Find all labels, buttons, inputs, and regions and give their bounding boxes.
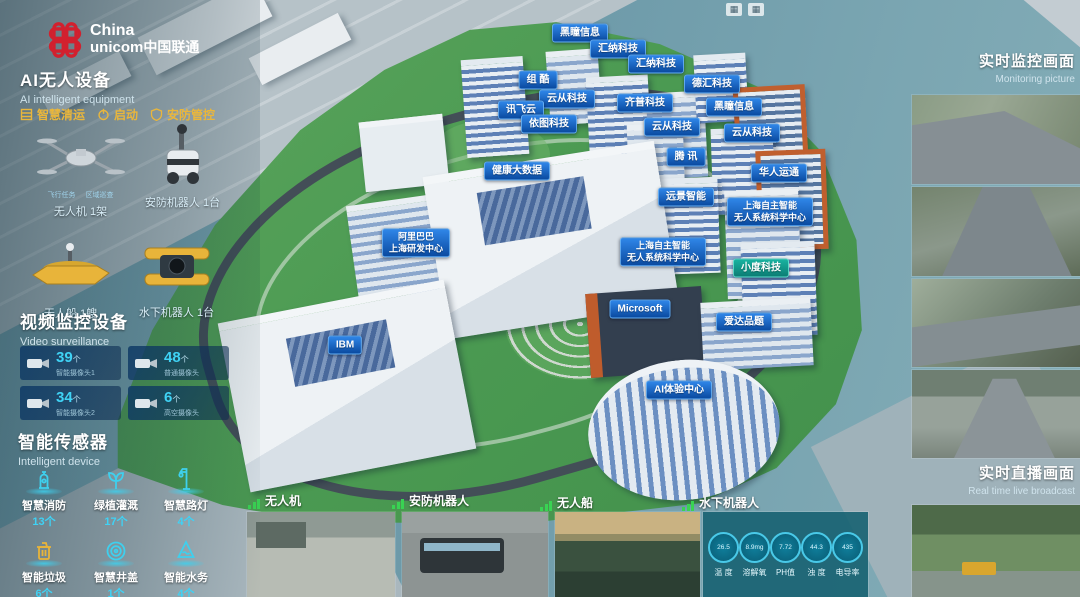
ai-equipment-subtitle: AI intelligent equipment	[20, 94, 134, 106]
monitor-camera-thumbnail-2[interactable]	[912, 187, 1080, 276]
gauge-temperature: 26.5 温 度	[708, 532, 739, 578]
device-drone[interactable]: 飞行任务 区域巡查 无人机 1架	[28, 128, 133, 219]
camera-stat-card[interactable]: 48个 普通摄像头	[128, 346, 229, 380]
drone-patrol-badge: 区域巡查	[86, 190, 114, 200]
camera-icon	[134, 395, 158, 411]
logo-text-cn: 中国联通	[143, 39, 199, 55]
security-robot-video-thumbnail[interactable]	[402, 512, 548, 597]
sensor-base-glow	[168, 488, 204, 495]
water-quality-panel: 26.5 温 度 8.9mg 溶解氧 7.72 PH值 44.3 浊 度 435…	[703, 512, 868, 597]
building-label[interactable]: 云从科技	[539, 90, 595, 109]
camera-icon	[134, 355, 158, 371]
unmanned-boat-image	[25, 235, 117, 297]
drone-video-thumbnail[interactable]	[247, 512, 395, 597]
sensor-base-glow	[98, 488, 134, 495]
sensor-base-glow	[168, 560, 204, 567]
monitor-camera-thumbnail-1[interactable]	[912, 95, 1080, 184]
map-layers-control[interactable]: ▦	[748, 3, 764, 16]
building-label[interactable]: 健康大数据	[484, 162, 550, 181]
smart-park-dashboard: 黑瞳信息 汇纳科技 汇纳科技 组 酷 德汇科技 云从科技 齐普科技 黑瞳信息 讯…	[0, 0, 1080, 597]
building-label[interactable]: 华人运通	[751, 164, 807, 183]
sensor-base-glow	[26, 488, 62, 495]
logo-text-en1: China	[90, 23, 199, 40]
building-label[interactable]: 黑瞳信息	[706, 98, 762, 117]
video-title: 视频监控设备	[20, 308, 128, 333]
building-label[interactable]: 上海自主智能 无人系统科学中心	[727, 197, 813, 226]
building-label[interactable]: 汇纳科技	[628, 55, 684, 74]
drone-image	[35, 128, 127, 184]
broadcast-subtitle: Real time live broadcast	[915, 486, 1075, 497]
building-label[interactable]: 依图科技	[521, 115, 577, 134]
building-label[interactable]: 上海自主智能 无人系统科学中心	[620, 237, 706, 266]
gauge-dissolved-oxygen: 8.9mg 溶解氧	[739, 532, 770, 578]
gauge-turbidity: 44.3 浊 度	[801, 532, 832, 578]
logo-text-en2: unicom	[90, 39, 143, 56]
monitor-camera-thumbnail-4[interactable]	[912, 370, 1080, 458]
monitoring-panel-header: 实时监控画面 Monitoring picture	[915, 50, 1075, 85]
sensor-trash[interactable]: 智能垃圾 6个	[10, 538, 78, 597]
building-label[interactable]: 德汇科技	[684, 75, 740, 94]
building-label[interactable]: 组 酷	[519, 71, 558, 90]
building-label[interactable]: 齐普科技	[617, 94, 673, 113]
sensors-title: 智能传感器	[18, 428, 108, 453]
building-label[interactable]: 云从科技	[644, 118, 700, 137]
underwater-robot-image	[131, 238, 223, 296]
left-sidebar: China unicom中国联通 AI无人设备 AI intelligent e…	[0, 0, 260, 597]
building-label[interactable]: 云从科技	[724, 124, 780, 143]
building-label[interactable]: 远景智能	[658, 188, 714, 207]
monitor-camera-thumbnail-3[interactable]	[912, 279, 1080, 367]
broadcast-title: 实时直播画面	[915, 462, 1075, 483]
shield-icon	[150, 108, 163, 121]
broadcast-thumbnail[interactable]	[912, 505, 1080, 597]
camera-stat-card[interactable]: 39个 智能摄像头1	[20, 346, 121, 380]
monitoring-subtitle: Monitoring picture	[915, 74, 1075, 85]
action-security-control[interactable]: 安防管控	[150, 106, 215, 123]
action-start[interactable]: 启动	[97, 106, 138, 123]
signal-bars-icon	[540, 501, 552, 511]
gauge-ph: 7.72 PH值	[770, 532, 801, 578]
china-unicom-logo: China unicom中国联通	[48, 20, 199, 60]
building-label[interactable]: IBM	[328, 336, 362, 355]
signal-bars-icon	[392, 499, 404, 509]
ground-label-underwater-robot[interactable]: 水下机器人	[682, 494, 759, 511]
device-security-robot[interactable]: 安防机器人 1台	[130, 122, 235, 210]
camera-stat-card[interactable]: 6个 高空摄像头	[128, 386, 229, 420]
sensor-fire[interactable]: 智慧消防 13个	[10, 466, 78, 529]
camera-icon	[26, 355, 50, 371]
action-smart-cleaning[interactable]: 智慧清运	[20, 106, 85, 123]
sensor-base-glow	[26, 560, 62, 567]
sensor-streetlight[interactable]: 智慧路灯 4个	[152, 466, 220, 529]
building-label[interactable]: Microsoft	[610, 300, 671, 319]
sensor-manhole[interactable]: 智慧井盖 1个	[82, 538, 150, 597]
building-label[interactable]: 阿里巴巴 上海研发中心	[382, 228, 450, 257]
sensor-base-glow	[98, 560, 134, 567]
power-icon	[97, 108, 110, 121]
boat-video-thumbnail[interactable]	[555, 512, 700, 597]
ai-equipment-title: AI无人设备	[20, 66, 134, 91]
broadcast-panel-header: 实时直播画面 Real time live broadcast	[915, 462, 1075, 497]
ground-label-security-robot[interactable]: 安防机器人	[392, 492, 469, 509]
device-underwater-robot[interactable]: 水下机器人 1台	[124, 238, 229, 320]
monitoring-title: 实时监控画面	[915, 50, 1075, 71]
map-grid-control[interactable]: ▦	[726, 3, 742, 16]
signal-bars-icon	[682, 501, 694, 511]
security-robot-image	[147, 122, 219, 186]
sensor-water[interactable]: 智能水务 4个	[152, 538, 220, 597]
building-label[interactable]: 腾 讯	[667, 148, 706, 167]
building-label[interactable]: AI体验中心	[646, 381, 712, 400]
unicom-knot-icon	[48, 20, 82, 60]
building-label[interactable]: 爱达品题	[716, 313, 772, 332]
building-block	[700, 297, 813, 371]
gauge-conductivity: 435 电导率	[832, 532, 863, 578]
camera-stat-card[interactable]: 34个 智能摄像头2	[20, 386, 121, 420]
sensor-irrigation[interactable]: 绿植灌溉 17个	[82, 466, 150, 529]
ground-label-boat[interactable]: 无人船	[540, 494, 593, 511]
building-label[interactable]: 小度科技	[733, 259, 789, 278]
drone-task-badge: 飞行任务	[48, 190, 76, 200]
camera-icon	[26, 395, 50, 411]
broom-icon	[20, 108, 33, 121]
